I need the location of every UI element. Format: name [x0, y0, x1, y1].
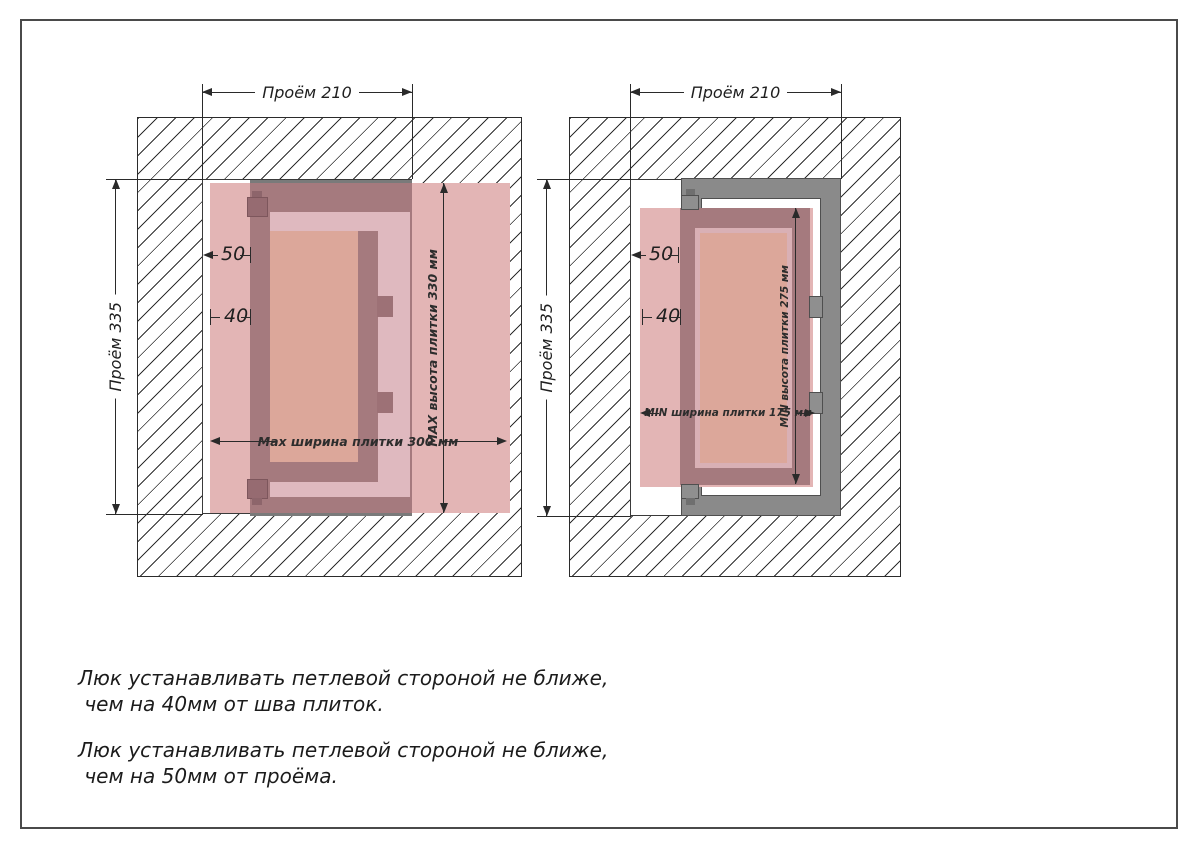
arrowhead-left [210, 437, 220, 445]
extension-line [537, 516, 631, 517]
dimension-line [443, 183, 444, 513]
right-tile-height-label: MIN высота плитки 275 мм [779, 265, 791, 427]
dimension-line [796, 413, 805, 414]
right-bottom-hinge [681, 484, 699, 499]
arrowhead-right [805, 409, 815, 417]
extension-line [106, 514, 203, 515]
left-hinge-offset-40: 40 [224, 305, 248, 327]
right-hinge-offset-40: 40 [656, 305, 680, 327]
arrowhead-left [203, 251, 213, 259]
left-opening-height-dim: Проём 335 [103, 179, 128, 514]
right-door-panel [700, 233, 787, 463]
tick [641, 255, 646, 256]
left-tile-height-label: MAX высота плитки 330 мм [425, 249, 440, 447]
left-latch-top [377, 296, 393, 317]
left-top-hinge [247, 197, 268, 217]
tick [680, 309, 681, 325]
tick [250, 309, 251, 325]
left-opening-height-label: Проём 335 [106, 295, 125, 399]
arrowhead-right [497, 437, 507, 445]
left-door-panel [270, 231, 358, 462]
right-top-hinge [681, 195, 699, 210]
extension-line [841, 84, 842, 179]
tick [241, 317, 250, 318]
right-tile-height-dim: MIN высота плитки 275 мм [776, 208, 794, 484]
right-bottom-hinge-pin [686, 498, 695, 505]
arrowhead-left [631, 251, 641, 259]
dimension-line [440, 441, 497, 442]
right-opening-width-dim: Проём 210 [630, 83, 841, 101]
left-bottom-hinge [247, 479, 268, 499]
note-seam-clearance: Люк устанавливать петлевой стороной не б… [78, 665, 608, 718]
right-opening-height-label: Проём 335 [537, 296, 556, 400]
extension-line [412, 84, 413, 179]
left-bottom-hinge-pin [252, 498, 262, 505]
left-tile-width-dim: Max ширина плитки 300 мм [276, 432, 440, 450]
tick [643, 317, 652, 318]
right-latch-top [809, 296, 823, 318]
left-hinge-offset-50: 50 [221, 243, 245, 265]
dimension-line [795, 208, 796, 484]
right-hinge-offset-50: 50 [649, 243, 673, 265]
tick [240, 255, 250, 256]
tick [211, 317, 220, 318]
tick [668, 255, 678, 256]
tick [671, 317, 680, 318]
tick [678, 247, 679, 263]
left-opening-width-label: Проём 210 [255, 83, 359, 102]
tick [213, 255, 218, 256]
tick [250, 247, 251, 263]
left-latch-bottom [377, 392, 393, 413]
left-tile-height-dim: MAX высота плитки 330 мм [423, 183, 442, 513]
drawing-sheet: Проём 210 Проём 335 50 40 Max ширина пли… [0, 0, 1200, 848]
left-opening-width-dim: Проём 210 [202, 83, 412, 101]
right-opening-width-label: Проём 210 [684, 83, 788, 102]
right-opening-height-dim: Проём 335 [534, 179, 559, 516]
note-opening-clearance: Люк устанавливать петлевой стороной не б… [78, 737, 608, 790]
